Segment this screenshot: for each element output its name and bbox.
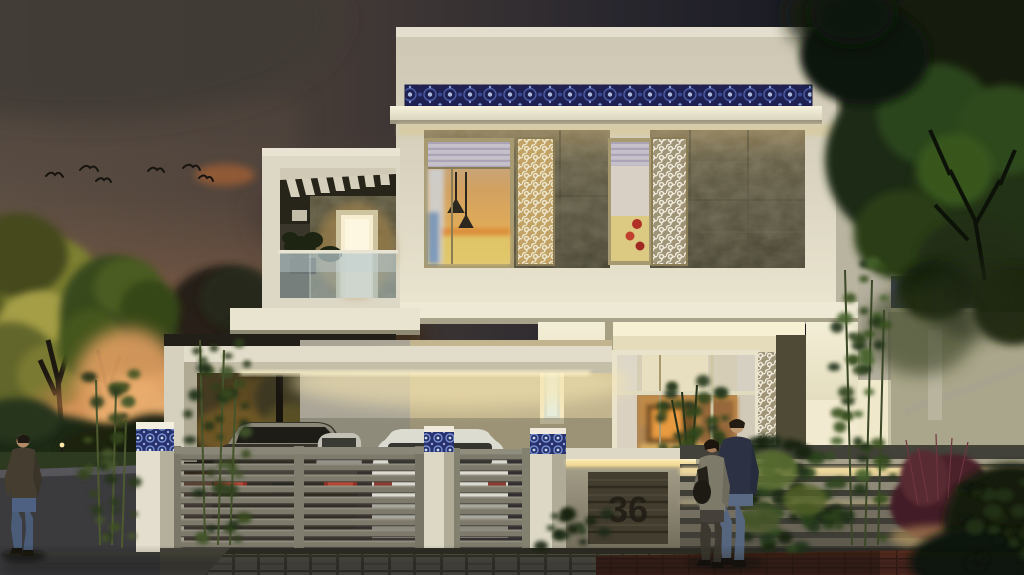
svg-text:36: 36 — [608, 489, 648, 530]
